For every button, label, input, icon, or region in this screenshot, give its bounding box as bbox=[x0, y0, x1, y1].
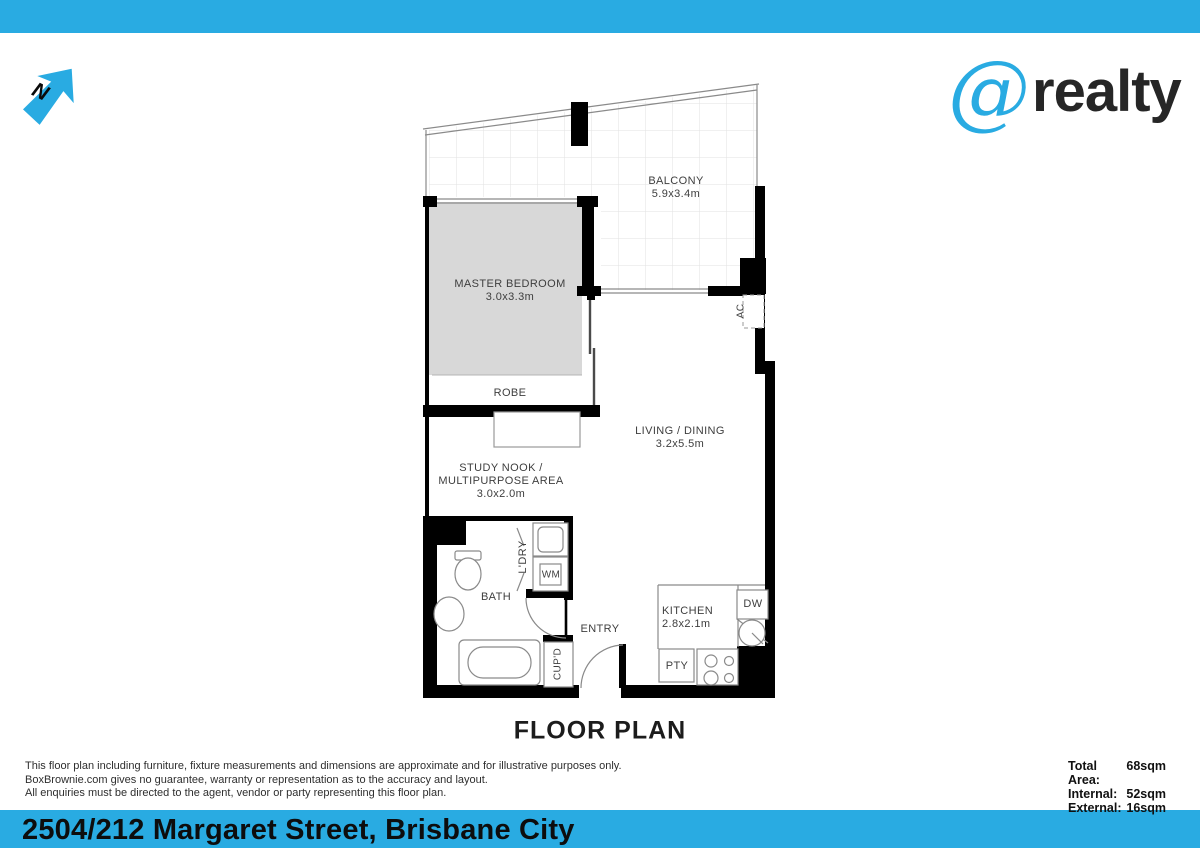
washing-machine-label: WM bbox=[542, 570, 561, 581]
internal-area-label: Internal: bbox=[1068, 787, 1117, 801]
laundry-tub-inner bbox=[538, 527, 563, 552]
area-summary: Total Area: 68sqm Internal: 52sqm Extern… bbox=[1068, 759, 1166, 803]
internal-area-value: 52sqm bbox=[1126, 787, 1166, 801]
living-dining-dims: 3.2x5.5m bbox=[656, 438, 704, 450]
burner-3 bbox=[704, 671, 718, 685]
laundry-label: L'DRY bbox=[517, 540, 529, 573]
bedroom-sliding-door bbox=[590, 296, 594, 406]
internal-area-row: Internal: 52sqm bbox=[1068, 787, 1166, 801]
disclaimer-line-2: BoxBrownie.com gives no guarantee, warra… bbox=[25, 774, 725, 788]
pantry-label: PTY bbox=[666, 660, 689, 672]
floor-plan-title: FLOOR PLAN bbox=[514, 717, 687, 746]
study-nook-label-line1: STUDY NOOK / bbox=[459, 462, 542, 474]
master-bedroom-dims: 3.0x3.3m bbox=[486, 291, 534, 303]
total-area-row: Total Area: 68sqm bbox=[1068, 759, 1166, 787]
burner-2 bbox=[725, 657, 734, 666]
disclaimer-line-1: This floor plan including furniture, fix… bbox=[25, 760, 725, 774]
kitchen-dims: 2.8x2.1m bbox=[662, 618, 710, 630]
burner-4 bbox=[725, 674, 734, 683]
entry-label: ENTRY bbox=[580, 623, 619, 635]
bifold-door-tick-bottom bbox=[517, 573, 524, 591]
study-nook-dims: 3.0x2.0m bbox=[477, 488, 525, 500]
disclaimer: This floor plan including furniture, fix… bbox=[25, 760, 725, 801]
bathtub-inner bbox=[468, 647, 531, 678]
external-area-row: External: 16sqm bbox=[1068, 801, 1166, 815]
toilet-bowl bbox=[455, 558, 481, 590]
master-bedroom-label: MASTER BEDROOM bbox=[454, 278, 565, 290]
balcony-label: BALCONY bbox=[648, 175, 703, 187]
bath-label: BATH bbox=[481, 591, 511, 603]
burner-1 bbox=[705, 655, 717, 667]
robe-label: ROBE bbox=[494, 387, 527, 399]
kitchen-label: KITCHEN bbox=[662, 605, 713, 617]
external-area-value: 16sqm bbox=[1126, 801, 1166, 815]
total-area-label: Total Area: bbox=[1068, 759, 1126, 787]
total-area-value: 68sqm bbox=[1126, 759, 1166, 787]
dishwasher-label: DW bbox=[743, 598, 762, 610]
disclaimer-line-3: All enquiries must be directed to the ag… bbox=[25, 787, 725, 801]
balcony-dims: 5.9x3.4m bbox=[652, 188, 700, 200]
external-area-label: External: bbox=[1068, 801, 1122, 815]
basin bbox=[434, 597, 464, 631]
living-dining-label: LIVING / DINING bbox=[635, 425, 725, 437]
cupboard-label: CUP'D bbox=[553, 648, 564, 680]
study-desk bbox=[494, 412, 580, 447]
study-nook-label-line2: MULTIPURPOSE AREA bbox=[438, 475, 563, 487]
ac-label: AC bbox=[736, 304, 747, 319]
